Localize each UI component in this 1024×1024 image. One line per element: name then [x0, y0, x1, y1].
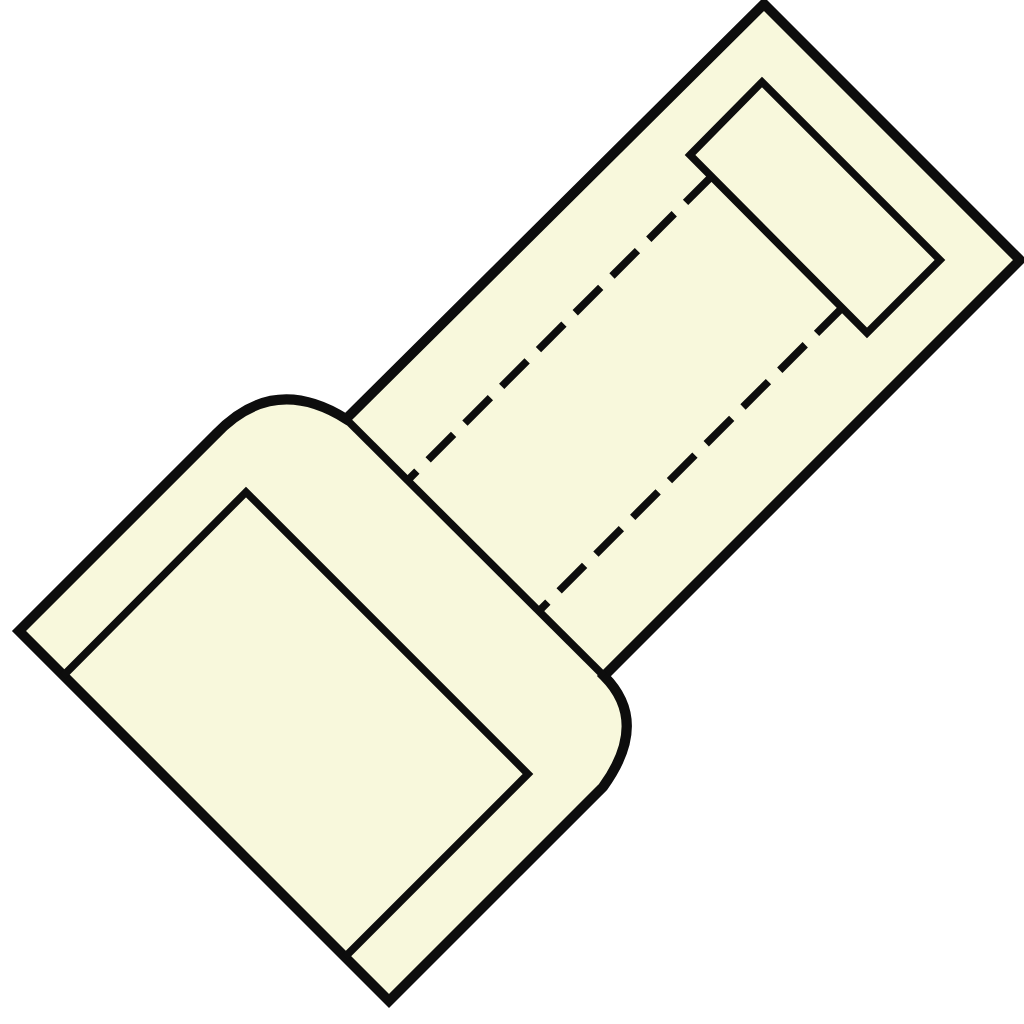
connector-technical-drawing [0, 0, 1024, 1024]
drawing-viewport [0, 0, 1024, 1024]
connector-body-outline [19, 4, 1020, 1001]
